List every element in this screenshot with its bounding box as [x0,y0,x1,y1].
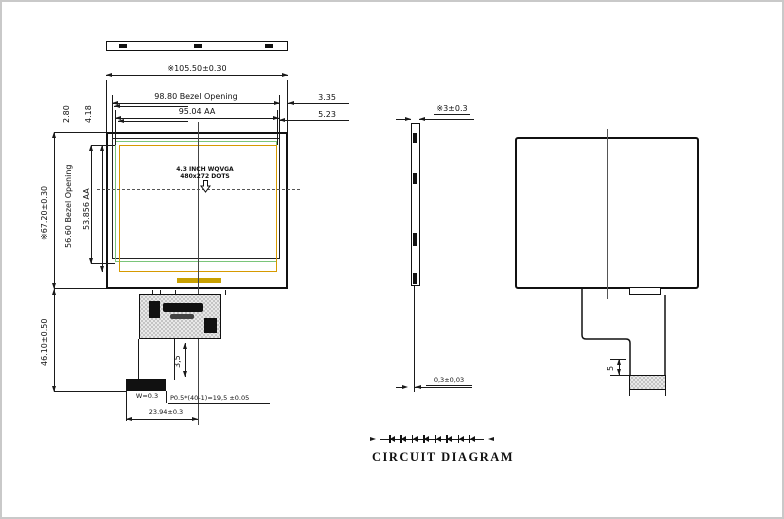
arrowhead [402,385,408,389]
driver-ic-bar [177,278,221,283]
dim-line-aa-width [115,118,279,119]
extension-line [54,288,106,289]
dim-right-margin-2: 5.23 [310,110,344,119]
arrowhead [279,118,285,122]
arrowhead [183,343,187,349]
led-symbol-icon [411,434,419,445]
circuit-terminal-icon [370,437,376,441]
arrowhead [89,258,93,264]
arrowhead [114,104,120,108]
fpc-contact-bar [126,379,166,391]
tick-mark [629,390,630,396]
fpc-component [149,301,160,318]
dim-line-total-width [106,75,288,76]
dim-fpc-thickness: 0,3±0,03 [426,376,472,386]
side-view-tab [413,233,417,246]
side-view-tab [413,173,417,184]
extension-line [166,391,167,403]
extension-line [54,132,106,133]
leader-line [118,121,188,122]
dim-right-margin-1: 3.35 [310,93,344,102]
rear-view-contact-bar [629,375,666,390]
dim-fpc-connector-width: 23.94±0.3 [136,408,196,416]
arrowhead [100,266,104,272]
side-view-tab [413,133,417,143]
fpc-component [204,318,217,333]
led-symbol-icon [468,434,476,445]
dim-line-bezel-height [91,145,92,264]
led-symbol-icon [399,434,407,445]
dim-pin-pitch: P0.5*(40-1)=19,5 ±0.05 [168,394,270,404]
fpc-part-number-label [163,303,203,312]
side-view-outline [411,123,420,286]
led-symbol-icon [457,434,465,445]
dim-aa-height: 53.856 AA [82,188,91,230]
dim-bezel-height: 56.60 Bezel Opening [64,165,73,248]
top-view-tab [119,44,127,48]
arrowhead [100,145,104,151]
dim-bezel-width: 98.80 Bezel Opening [112,92,280,101]
dim-aa-width: 95.04 AA [115,107,279,116]
side-view-fpc-line [414,286,415,392]
dim-total-height: ※67.20±0.30 [40,186,49,240]
dim-neck: 3,5 [173,355,182,368]
dim-thickness: ※3±0.3 [428,104,476,113]
circuit-terminal-icon [488,437,494,441]
dim-line-fpc-length [54,289,55,392]
screen-label-line2: 480x272 DOTS [170,173,240,180]
arrowhead [183,371,187,377]
arrowhead [89,145,93,151]
arrowhead [192,417,198,421]
dim-fpc-length: 46.10±0.50 [40,319,49,366]
dim-line-fpc-width [126,419,198,420]
arrowhead [415,385,421,389]
arrowhead [126,417,132,421]
fpc-part-number-label [170,314,194,319]
screen-label-line1: 4.3 INCH WQVGA [170,166,240,173]
arrowhead [288,101,294,105]
arrowhead [52,289,56,295]
tick-mark [665,390,666,396]
dim-total-width: ※105.50±0.30 [106,64,288,73]
extension-line [610,375,629,376]
top-view-tab [265,44,273,48]
arrowhead [405,117,411,121]
dim-line-aa-height [102,145,103,272]
arrowhead [282,73,288,77]
viewing-direction-arrow-icon [200,180,211,193]
led-symbol-icon [388,434,396,445]
extension-line [287,80,288,132]
arrowhead [274,101,280,105]
dim-line-bezel-width [112,103,280,104]
arrowhead [617,369,621,375]
fpc-leg [225,290,226,295]
extension-line [106,80,107,132]
arrowhead [52,132,56,138]
led-symbol-icon [422,434,430,445]
dim-top-left-1: 2.80 [62,105,71,123]
horizontal-centerline [97,189,300,190]
side-view-tab [413,273,417,284]
fpc-tail-edge [138,339,139,380]
dim-contact-length: 5 [606,366,615,371]
ref-mark: ※ [40,233,49,240]
leader-line [396,387,402,388]
led-symbol-icon [445,434,453,445]
arrowhead [617,359,621,365]
leader-line [279,120,349,121]
leader-line [114,106,188,107]
leader-line [288,103,349,104]
dim-line-total-height [54,132,55,289]
top-view-tab [194,44,202,48]
led-row [388,433,476,445]
extension-line [91,263,115,264]
dim-contact-width: W=0.3 [132,392,162,400]
circuit-diagram-title: CIRCUIT DIAGRAM [372,450,492,465]
arrowhead [419,117,425,121]
leader-line [414,387,472,388]
extension-line [54,391,126,392]
arrowhead [118,119,124,123]
led-symbol-icon [434,434,442,445]
rear-view-centerline [607,129,608,299]
arrowhead [106,73,112,77]
engineering-drawing: 4.3 INCH WQVGA 480x272 DOTS ※105.50±0.30… [0,0,784,519]
leader-line [419,119,474,120]
dim-top-left-2: 4.18 [84,105,93,123]
